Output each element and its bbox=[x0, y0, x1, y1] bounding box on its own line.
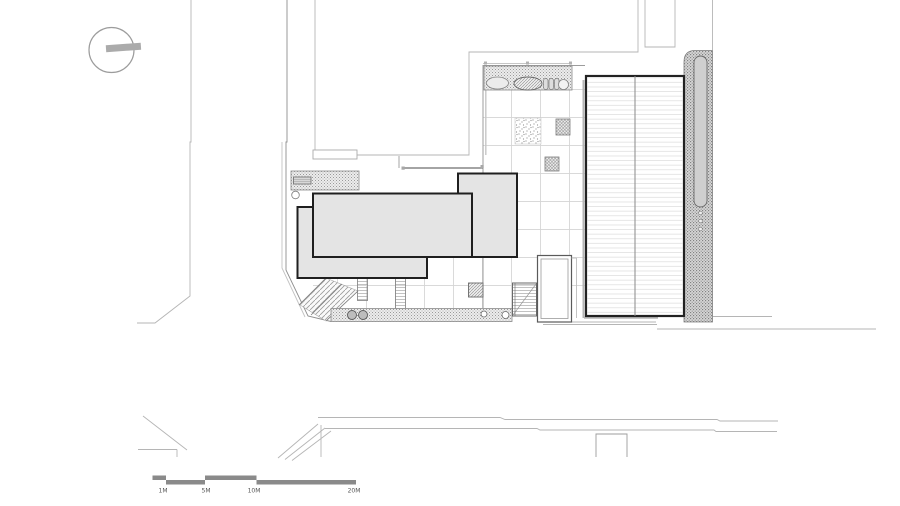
stair-shaft bbox=[538, 256, 577, 323]
site-plan-drawing: 1M 5M 10M 20M bbox=[0, 0, 900, 506]
lower-street-lines bbox=[138, 416, 778, 461]
scale-label-10m: 10M bbox=[248, 488, 261, 495]
exterior-stair bbox=[513, 283, 537, 316]
south-walkway bbox=[331, 309, 512, 322]
north-indicator-icon bbox=[89, 28, 141, 73]
scale-bar: 1M 5M 10M 20M bbox=[153, 476, 361, 495]
site-plan-canvas: 1M 5M 10M 20M bbox=[0, 0, 900, 506]
scale-label-1m: 1M bbox=[159, 488, 168, 495]
planting-strip-right bbox=[684, 51, 713, 323]
planting-strip-top bbox=[484, 66, 572, 90]
roof-main bbox=[313, 194, 472, 258]
perimeter-fence bbox=[313, 150, 484, 170]
scale-label-20m: 20M bbox=[348, 488, 361, 495]
scale-label-5m: 5M bbox=[202, 488, 211, 495]
hall-building bbox=[584, 76, 685, 318]
